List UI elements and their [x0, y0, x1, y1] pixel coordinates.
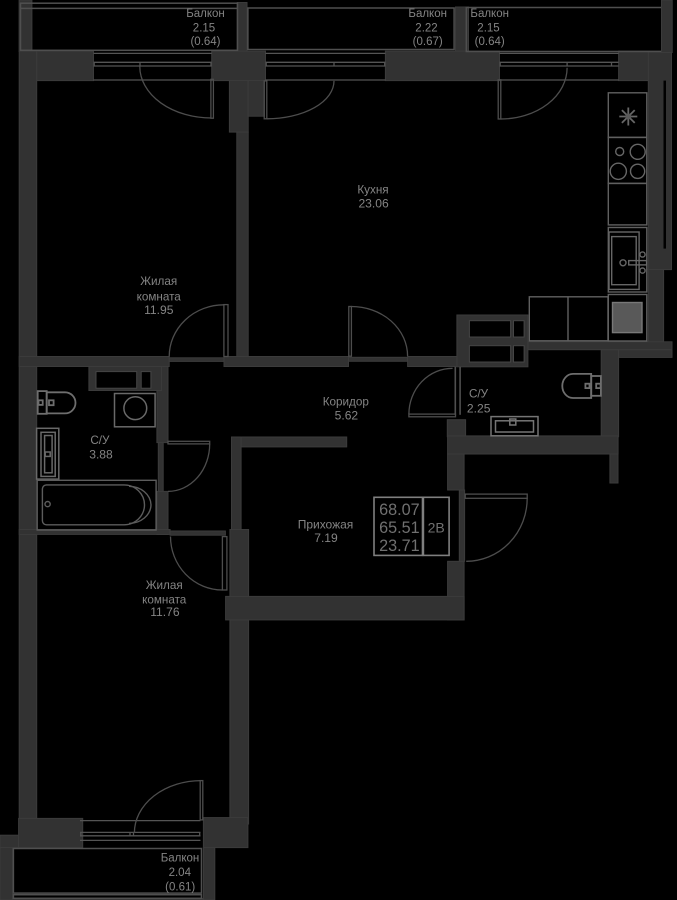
svg-text:С/У: С/У: [90, 434, 110, 447]
svg-text:Коридор: Коридор: [323, 395, 370, 408]
svg-text:Жилая: Жилая: [140, 275, 177, 288]
svg-text:(0.67): (0.67): [413, 36, 443, 48]
svg-text:7.19: 7.19: [314, 531, 338, 545]
svg-text:65.51: 65.51: [379, 519, 420, 537]
svg-text:3.88: 3.88: [89, 447, 113, 461]
svg-text:68.07: 68.07: [379, 501, 420, 519]
svg-text:2В: 2В: [428, 520, 445, 536]
svg-text:2.04: 2.04: [169, 867, 192, 879]
svg-text:2.25: 2.25: [467, 402, 491, 416]
svg-text:(0.61): (0.61): [165, 882, 195, 894]
svg-text:23.06: 23.06: [358, 197, 389, 211]
svg-text:2.15: 2.15: [477, 23, 499, 35]
svg-text:С/У: С/У: [469, 387, 489, 400]
svg-text:5.62: 5.62: [335, 409, 359, 423]
svg-text:11.76: 11.76: [150, 605, 180, 619]
svg-text:Прихожая: Прихожая: [298, 518, 354, 532]
svg-text:Балкон: Балкон: [470, 8, 509, 20]
svg-text:2.22: 2.22: [415, 23, 437, 35]
svg-text:Балкон: Балкон: [186, 8, 225, 20]
svg-text:комната: комната: [137, 290, 182, 303]
svg-text:Кухня: Кухня: [357, 184, 388, 197]
svg-text:23.71: 23.71: [379, 537, 420, 555]
svg-text:Балкон: Балкон: [161, 852, 200, 864]
svg-text:Жилая: Жилая: [146, 579, 183, 592]
svg-text:11.95: 11.95: [144, 303, 174, 317]
svg-text:(0.64): (0.64): [475, 36, 505, 48]
svg-text:2.15: 2.15: [193, 23, 215, 35]
svg-text:(0.64): (0.64): [190, 36, 220, 48]
svg-text:Балкон: Балкон: [408, 8, 447, 20]
